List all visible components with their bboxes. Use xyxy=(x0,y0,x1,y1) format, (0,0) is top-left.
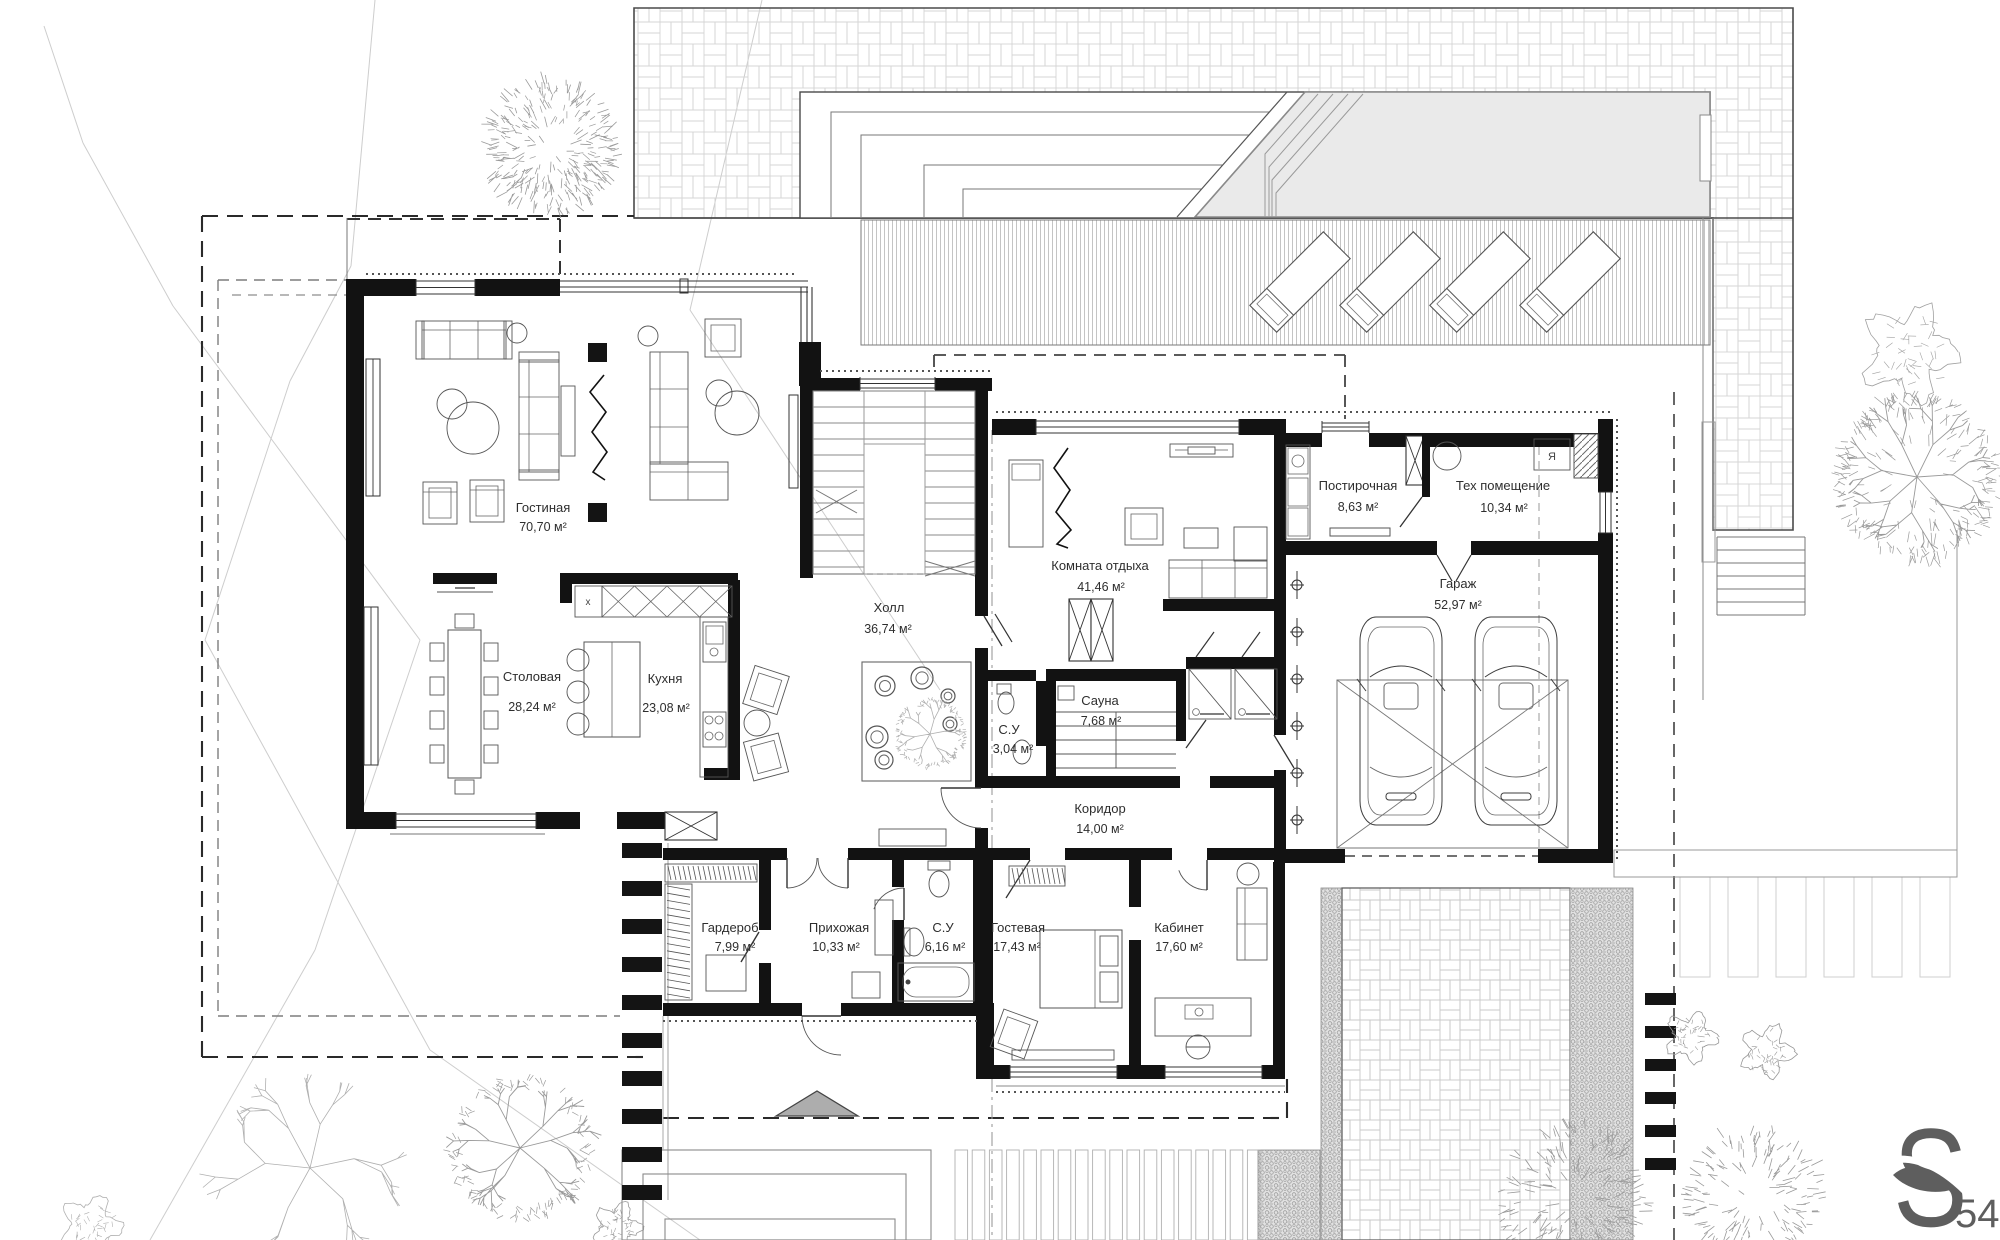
svg-text:Гардероб: Гардероб xyxy=(701,920,758,935)
svg-text:С.У: С.У xyxy=(998,722,1020,737)
svg-text:14,00 м²: 14,00 м² xyxy=(1076,822,1124,836)
svg-text:7,99 м²: 7,99 м² xyxy=(715,940,756,954)
svg-text:Гараж: Гараж xyxy=(1440,576,1477,591)
svg-text:3,04 м²: 3,04 м² xyxy=(993,742,1034,756)
svg-text:17,60 м²: 17,60 м² xyxy=(1155,940,1203,954)
svg-text:Комната отдыха: Комната отдыха xyxy=(1051,558,1149,573)
svg-text:Прихожая: Прихожая xyxy=(809,920,869,935)
svg-text:Тех помещение: Тех помещение xyxy=(1456,478,1550,493)
svg-text:Холл: Холл xyxy=(874,600,905,615)
svg-text:36,74 м²: 36,74 м² xyxy=(864,622,912,636)
svg-text:70,70 м²: 70,70 м² xyxy=(519,520,567,534)
svg-text:Кухня: Кухня xyxy=(648,671,683,686)
svg-text:28,24 м²: 28,24 м² xyxy=(508,700,556,714)
svg-text:10,34 м²: 10,34 м² xyxy=(1480,501,1528,515)
svg-text:54: 54 xyxy=(1955,1192,2000,1236)
svg-text:10,33 м²: 10,33 м² xyxy=(812,940,860,954)
svg-text:7,68 м²: 7,68 м² xyxy=(1081,714,1122,728)
svg-text:8,63 м²: 8,63 м² xyxy=(1338,500,1379,514)
svg-text:52,97 м²: 52,97 м² xyxy=(1434,598,1482,612)
svg-text:Я: Я xyxy=(1548,451,1556,463)
svg-text:17,43 м²: 17,43 м² xyxy=(993,940,1041,954)
svg-text:x: x xyxy=(586,597,591,608)
svg-text:Сауна: Сауна xyxy=(1081,693,1119,708)
svg-text:Гостевая: Гостевая xyxy=(991,920,1045,935)
svg-text:Постирочная: Постирочная xyxy=(1319,478,1398,493)
svg-text:Коридор: Коридор xyxy=(1074,801,1125,816)
svg-text:Кабинет: Кабинет xyxy=(1154,920,1203,935)
svg-text:41,46 м²: 41,46 м² xyxy=(1077,580,1125,594)
svg-text:23,08 м²: 23,08 м² xyxy=(642,701,690,715)
svg-text:Столовая: Столовая xyxy=(503,669,561,684)
svg-text:Гостиная: Гостиная xyxy=(516,500,571,515)
svg-text:6,16 м²: 6,16 м² xyxy=(925,940,966,954)
svg-text:С.У: С.У xyxy=(932,920,954,935)
